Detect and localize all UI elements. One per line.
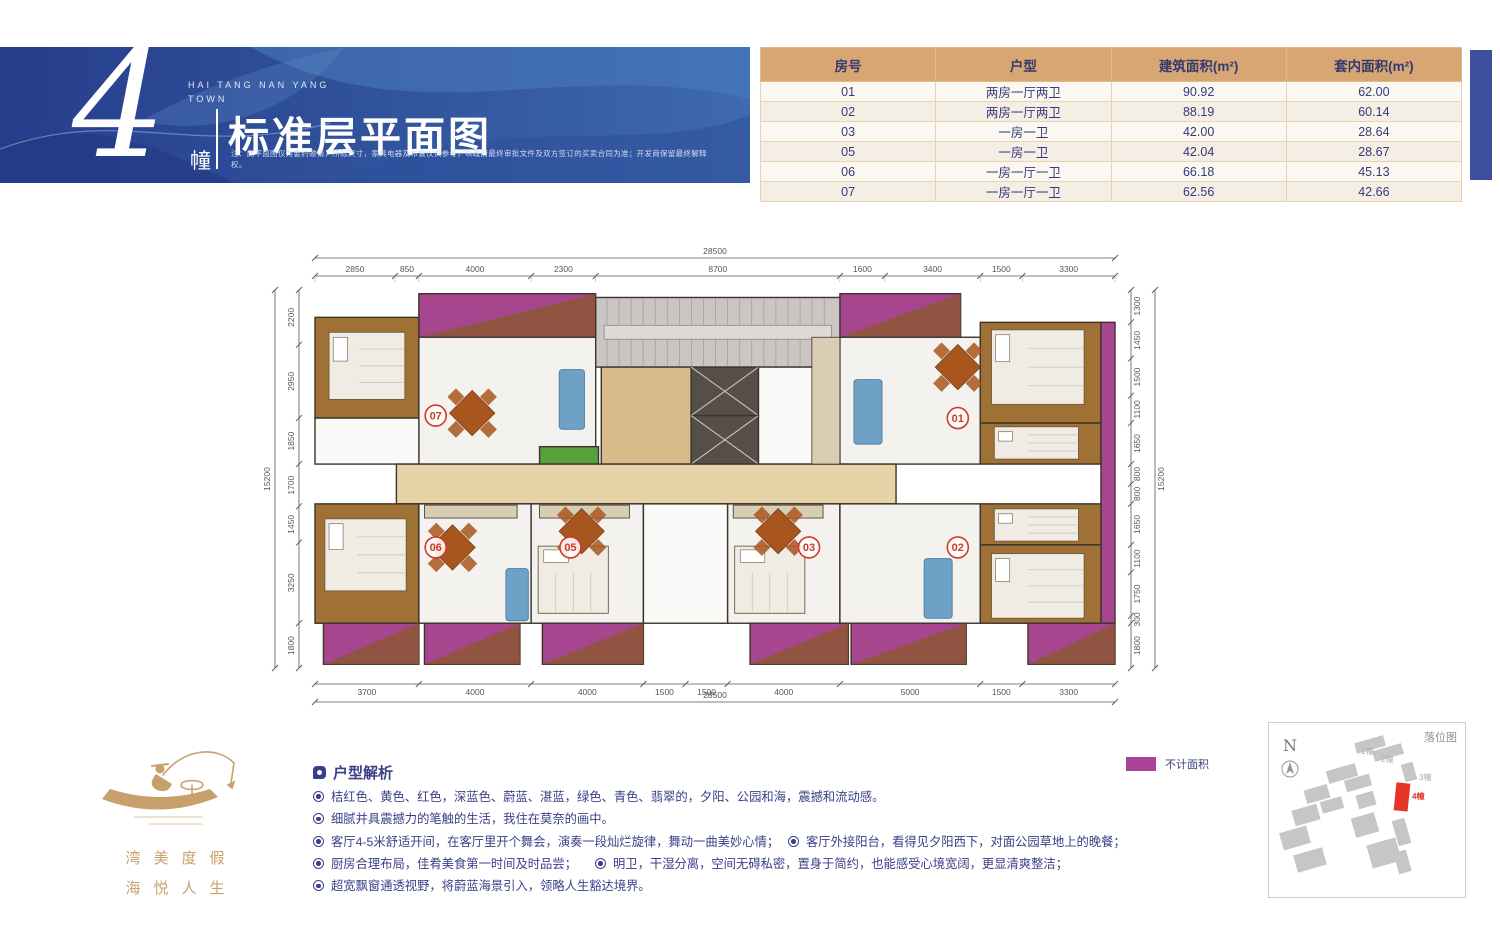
svg-text:1500: 1500 [655,687,674,697]
table-cell: 一房一卫 [936,142,1111,162]
table-cell: 66.18 [1111,162,1286,182]
table-cell: 28.64 [1286,122,1461,142]
svg-text:3300: 3300 [1059,687,1078,697]
analysis-text: 明卫，干湿分离，空间无碍私密，置身于简约，也能感受心境宽阔，更显清爽整洁； [613,857,1068,872]
excluded-area-label: 不计面积 [1165,756,1209,772]
analysis-row: 厨房合理布局，佳肴美食第一时间及时品尝；明卫，干湿分离，空间无碍私密，置身于简约… [313,857,1128,872]
site-building-label: 3幢 [1419,772,1431,782]
table-cell: 07 [761,182,936,202]
analysis-text: 桔红色、黄色、红色，深蓝色、蔚蓝、湛蓝，绿色、青色、翡翠的，夕阳、公园和海，震撼… [331,790,884,805]
svg-text:1450: 1450 [286,515,296,534]
svg-text:28500: 28500 [703,690,727,700]
table-cell: 45.13 [1286,162,1461,182]
svg-text:1750: 1750 [1132,584,1142,603]
svg-text:8700: 8700 [708,264,727,274]
building-number: 4 [72,31,166,179]
unit-analysis: 户型解析 桔红色、黄色、红色，深蓝色、蔚蓝、湛蓝，绿色、青色、翡翠的，夕阳、公园… [313,762,1128,895]
table-row: 07一房一厅一卫62.5642.66 [761,182,1462,202]
bullet-icon [313,880,324,891]
svg-text:1700: 1700 [286,475,296,494]
table-row: 01两房一厅两卫90.9262.00 [761,82,1462,102]
svg-text:2950: 2950 [286,372,296,391]
room-bath [315,418,419,464]
table-column-header: 建筑面积(m²) [1111,48,1286,82]
room-corridor [396,464,896,504]
table-cell: 60.14 [1286,102,1461,122]
table-cell: 28.67 [1286,142,1461,162]
analysis-text: 细腻并具震撼力的笔触的生活，我住在莫奈的画中。 [331,812,614,827]
svg-text:28500: 28500 [703,246,727,256]
svg-text:4000: 4000 [466,687,485,697]
site-building [1351,812,1380,838]
table-cell: 两房一厅两卫 [936,82,1111,102]
svg-text:1500: 1500 [992,687,1011,697]
analysis-text: 厨房合理布局，佳肴美食第一时间及时品尝； [331,857,577,872]
floor-plan: 0701060503022850850400023008700160034001… [245,240,1205,720]
site-building [1293,847,1327,873]
svg-text:2850: 2850 [346,264,365,274]
analysis-row: 超宽飘窗通透视野，将蔚蓝海景引入，领略人生豁达境界。 [313,879,1128,894]
right-edge-accent-bar [1470,50,1492,180]
room-lobby [601,367,691,464]
table-cell: 88.19 [1111,102,1286,122]
site-building [1291,804,1320,827]
svg-text:1100: 1100 [1132,400,1142,419]
svg-text:3700: 3700 [357,687,376,697]
site-building [1279,825,1311,850]
site-location-map: 落位图N1幢2幢3幢4幢 [1268,722,1466,898]
table-row: 02两房一厅两卫88.1960.14 [761,102,1462,122]
svg-text:1800: 1800 [286,636,296,655]
table-cell: 42.04 [1111,142,1286,162]
analysis-row: 桔红色、黄色、红色，深蓝色、蔚蓝、湛蓝，绿色、青色、翡翠的，夕阳、公园和海，震撼… [313,790,1128,805]
svg-text:1500: 1500 [992,264,1011,274]
sofa [924,559,952,619]
svg-text:800: 800 [1132,487,1142,501]
table-row: 05一房一卫42.0428.67 [761,142,1462,162]
floor-plan-drawing: 0701060503022850850400023008700160034001… [245,240,1205,720]
site-building-label: 4幢 [1412,791,1424,801]
svg-text:850: 850 [400,264,414,274]
unit-label: 05 [564,542,576,554]
disclaimer-note: 注：此平面图仅为要约邀请，所标尺寸，家具电器及布置仅供参考，以政府最终审批文件及… [231,148,711,170]
plan-legend: 不计面积 [1126,756,1209,772]
table-cell: 05 [761,142,936,162]
fisherman-boat-icon [68,733,282,833]
svg-text:4000: 4000 [578,687,597,697]
analysis-text: 客厅外接阳台，看得见夕阳西下，对面公园草地上的晚餐； [806,835,1126,850]
sofa [559,370,584,430]
svg-text:15200: 15200 [1156,467,1166,491]
table-cell: 42.66 [1286,182,1461,202]
site-building [1355,791,1376,809]
table-cell: 一房一厅一卫 [936,182,1111,202]
analysis-text: 客厅4-5米舒适开间，在客厅里开个舞会，演奏一段灿烂旋律，舞动一曲美妙心情； [331,835,779,850]
site-building-highlight [1394,782,1411,811]
sofa [854,380,882,445]
table-column-header: 房号 [761,48,936,82]
site-building-label: 1幢 [1361,746,1373,756]
svg-text:1800: 1800 [1132,636,1142,655]
table-row: 03一房一卫42.0028.64 [761,122,1462,142]
room-counter [812,337,840,464]
bullet-icon [313,791,324,802]
svg-text:1300: 1300 [1132,296,1142,315]
svg-text:2200: 2200 [286,308,296,327]
table-column-header: 套内面积(m²) [1286,48,1461,82]
bullet-icon [313,858,324,869]
room-bath [643,504,727,623]
svg-text:2300: 2300 [554,264,573,274]
svg-text:3250: 3250 [286,573,296,592]
bullet-icon [313,836,324,847]
svg-text:3300: 3300 [1059,264,1078,274]
slogan-line-1: 湾美度假 [68,847,282,868]
room-planter [540,447,599,464]
title-banner: 4 幢 HAI TANG NAN YANG TOWN 标准层平面图 注：此平面图… [0,47,750,183]
bullet-icon [595,858,606,869]
svg-text:800: 800 [1132,467,1142,481]
room-living [840,504,980,623]
siteplan-title: 落位图 [1424,730,1457,744]
table-cell: 03 [761,122,936,142]
table-cell: 两房一厅两卫 [936,102,1111,122]
project-name: HAI TANG NAN YANG TOWN [188,78,329,106]
svg-text:1450: 1450 [1132,331,1142,350]
table-cell: 一房一卫 [936,122,1111,142]
room-counter [424,505,517,518]
analysis-row: 细腻并具震撼力的笔触的生活，我住在莫奈的画中。 [313,812,1128,827]
svg-text:15200: 15200 [262,467,272,491]
unit-label: 01 [952,413,964,425]
unit-label: 07 [430,410,442,422]
table-header-row: 房号户型建筑面积(m²)套内面积(m²) [761,48,1462,82]
svg-text:1650: 1650 [1132,515,1142,534]
svg-text:1650: 1650 [1132,434,1142,453]
analysis-heading: 户型解析 [333,762,393,783]
brand-logo: 湾美度假 海悦人生 [68,733,282,898]
svg-text:5000: 5000 [901,687,920,697]
svg-text:3400: 3400 [923,264,942,274]
building-unit-label: 幢 [190,145,211,175]
analysis-heading-icon [313,766,326,779]
table-cell: 62.00 [1286,82,1461,102]
excluded-area-swatch [1126,757,1156,771]
svg-text:1850: 1850 [286,431,296,450]
sofa [506,569,528,621]
analysis-text: 超宽飘窗通透视野，将蔚蓝海景引入，领略人生豁达境界。 [331,879,651,894]
svg-text:1100: 1100 [1132,549,1142,568]
svg-text:1600: 1600 [853,264,872,274]
table-cell: 42.00 [1111,122,1286,142]
svg-text:4000: 4000 [466,264,485,274]
analysis-row: 客厅4-5米舒适开间，在客厅里开个舞会，演奏一段灿烂旋律，舞动一曲美妙心情；客厅… [313,835,1128,850]
table-cell: 02 [761,102,936,122]
svg-text:1500: 1500 [1132,367,1142,386]
table-cell: 90.92 [1111,82,1286,102]
unit-label: 06 [430,542,442,554]
unit-label: 02 [952,542,964,554]
banner-divider [216,109,218,169]
bullet-icon [313,813,324,824]
table-cell: 一房一厅一卫 [936,162,1111,182]
room-balcony [1101,322,1115,623]
site-building [1393,850,1412,875]
table-cell: 62.56 [1111,182,1286,202]
site-building-label: 2幢 [1381,754,1393,764]
svg-text:300: 300 [1132,612,1142,626]
table-column-header: 户型 [936,48,1111,82]
table-row: 06一房一厅一卫66.1845.13 [761,162,1462,182]
table-cell: 01 [761,82,936,102]
analysis-heading-row: 户型解析 [313,762,1128,783]
unit-area-table: 房号户型建筑面积(m²)套内面积(m²) 01两房一厅两卫90.9262.000… [760,47,1462,182]
unit-label: 03 [803,542,815,554]
bullet-icon [788,836,799,847]
site-building [1401,762,1417,783]
svg-text:4000: 4000 [774,687,793,697]
north-label: N [1283,736,1297,755]
slogan-line-2: 海悦人生 [68,877,282,898]
table-cell: 06 [761,162,936,182]
